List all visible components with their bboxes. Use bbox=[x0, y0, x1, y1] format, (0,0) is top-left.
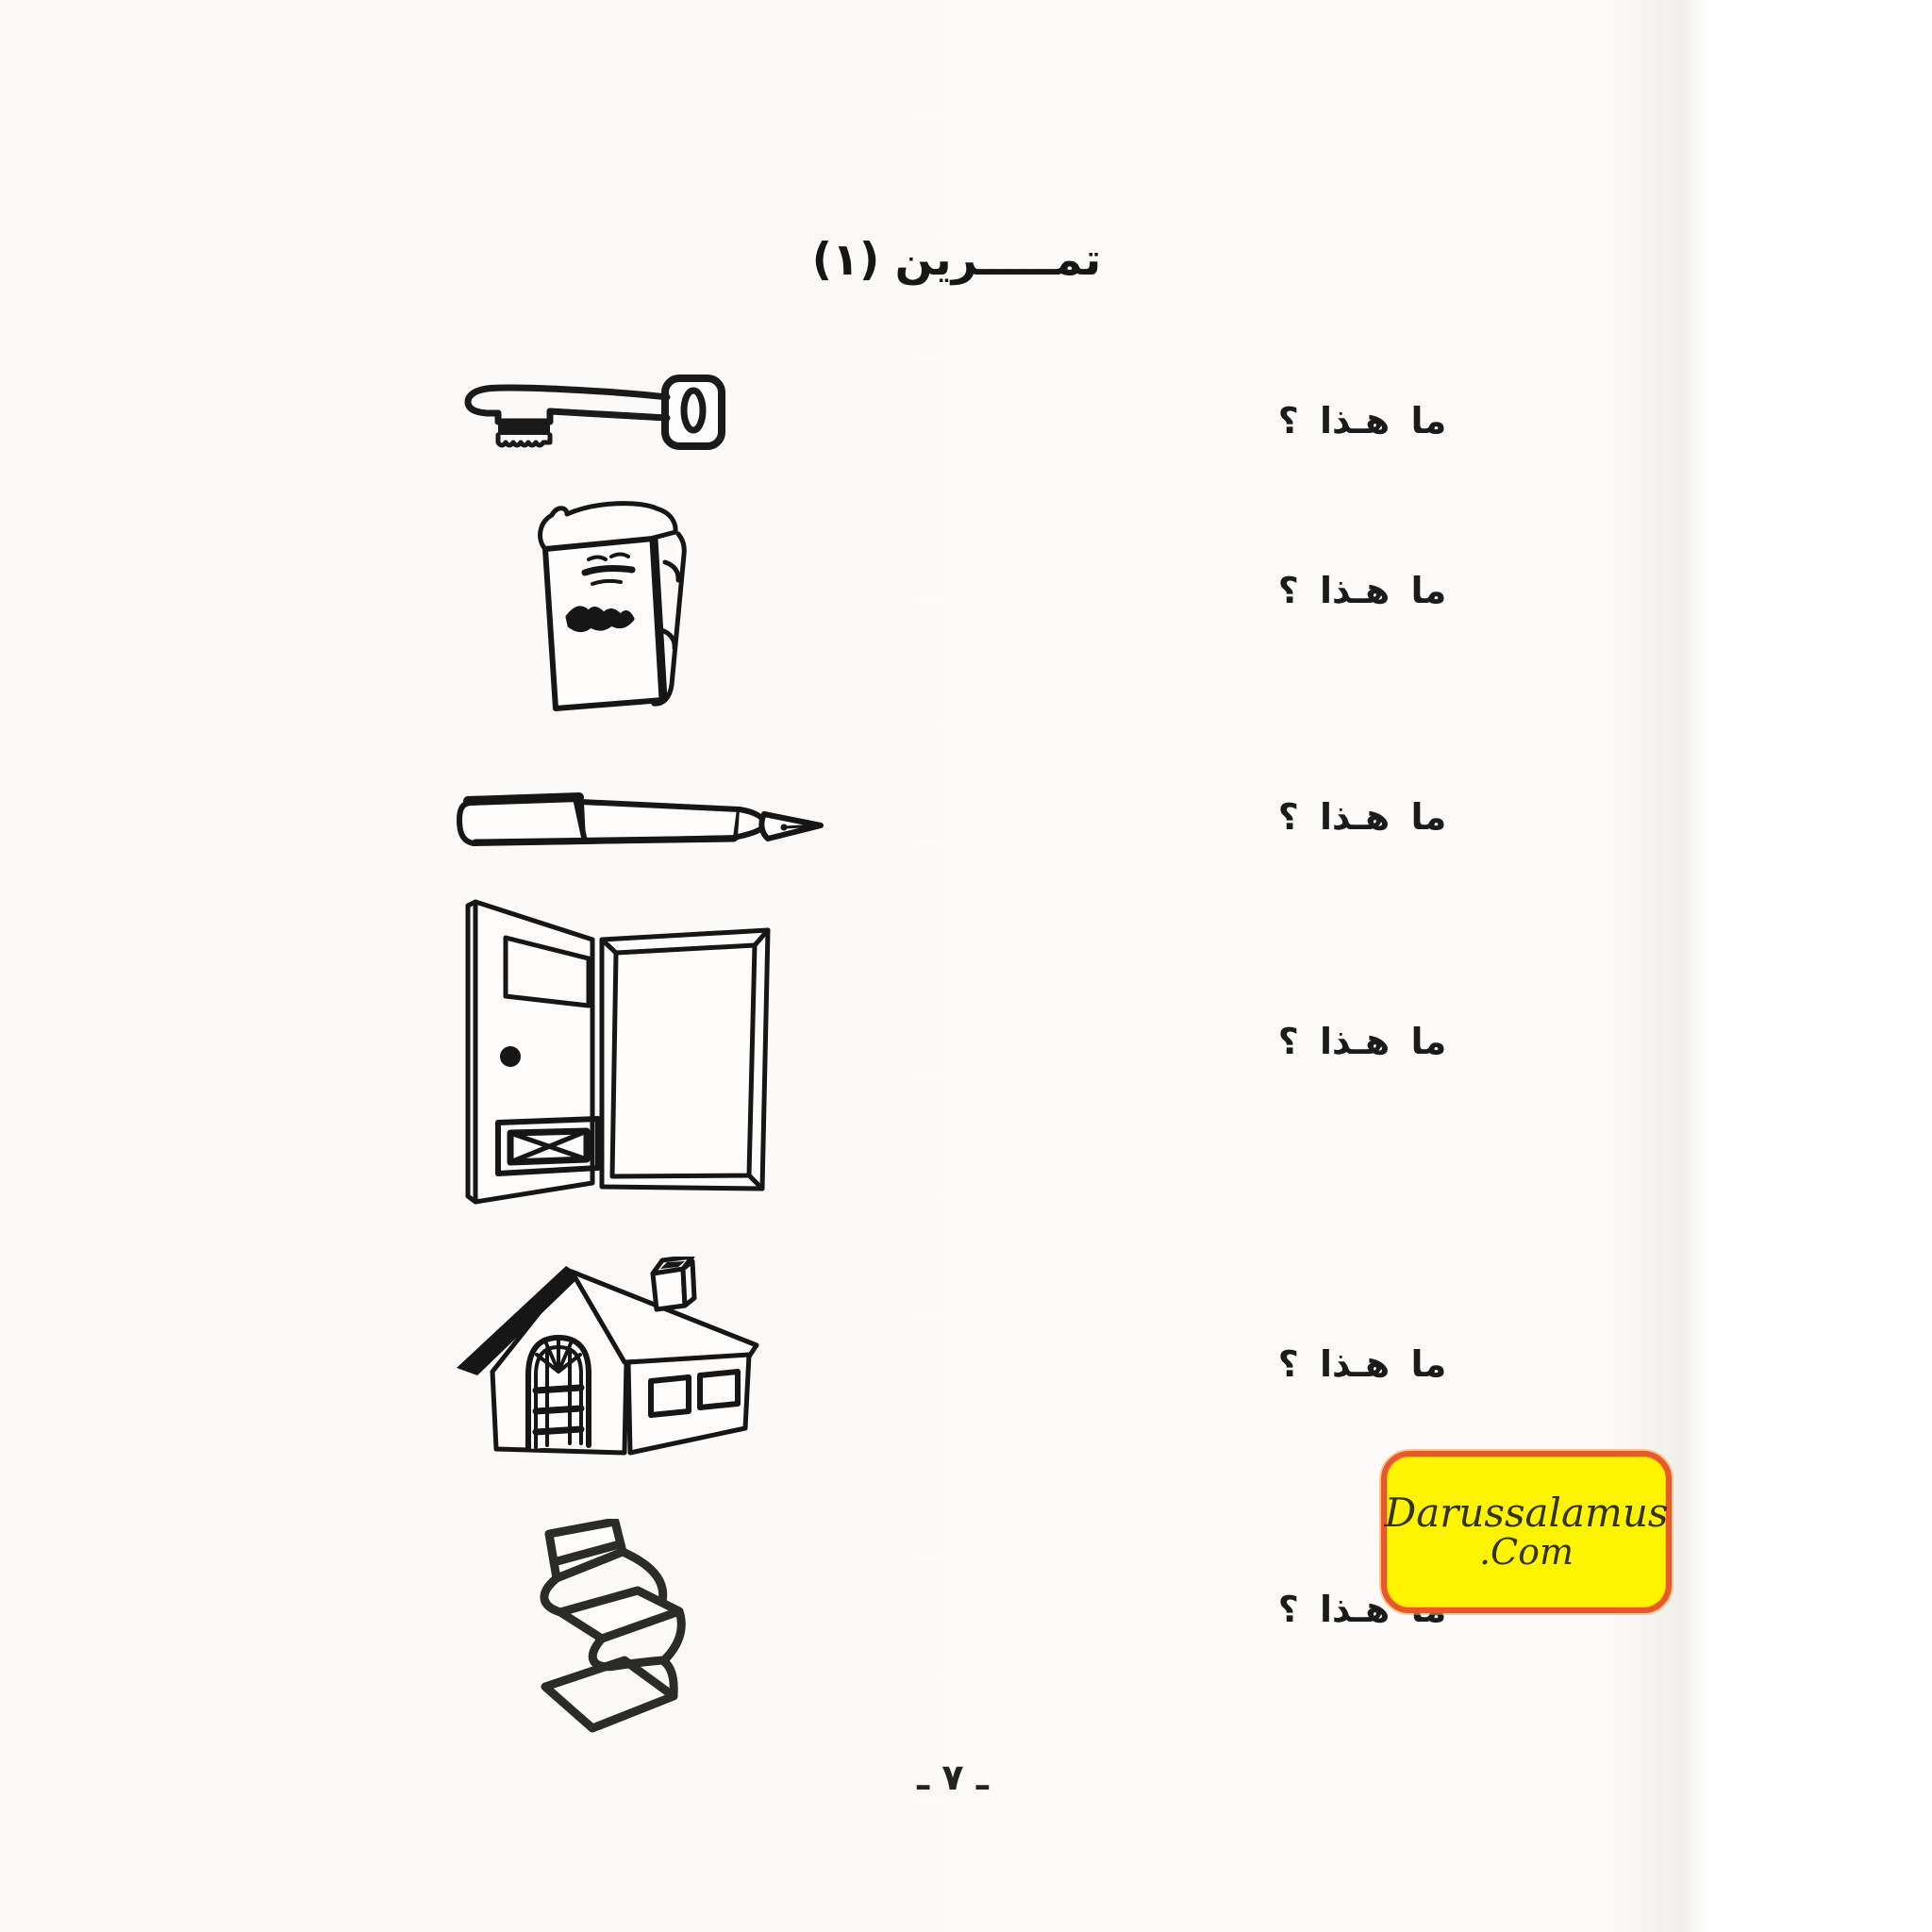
watermark-line2: .Com bbox=[1479, 1534, 1574, 1572]
question-text: ما هـذا ؟ bbox=[1255, 400, 1470, 441]
page-title: تمـــــرين (١) bbox=[740, 234, 1174, 286]
question-text: ما هـذا ؟ bbox=[1255, 796, 1470, 838]
question-text: ما هـذا ؟ bbox=[1255, 1343, 1470, 1385]
door-illustration bbox=[458, 896, 772, 1207]
question-text: ما هـذا ؟ bbox=[1255, 1021, 1470, 1062]
chair-illustration bbox=[523, 1519, 697, 1740]
book-illustration bbox=[530, 500, 695, 713]
pen-illustration bbox=[455, 789, 828, 853]
key-illustration bbox=[458, 372, 728, 453]
scanned-page: تمـــــرين (١) ما هـذا ؟ ما هـذا ؟ bbox=[0, 0, 1932, 1932]
question-text: ما هـذا ؟ bbox=[1255, 570, 1470, 611]
page-number: ـ ٧ ـ bbox=[849, 1757, 1057, 1798]
watermark-line1: Darussalamus bbox=[1385, 1492, 1669, 1534]
house-illustration bbox=[449, 1257, 777, 1458]
watermark-badge: Darussalamus .Com bbox=[1381, 1451, 1672, 1613]
